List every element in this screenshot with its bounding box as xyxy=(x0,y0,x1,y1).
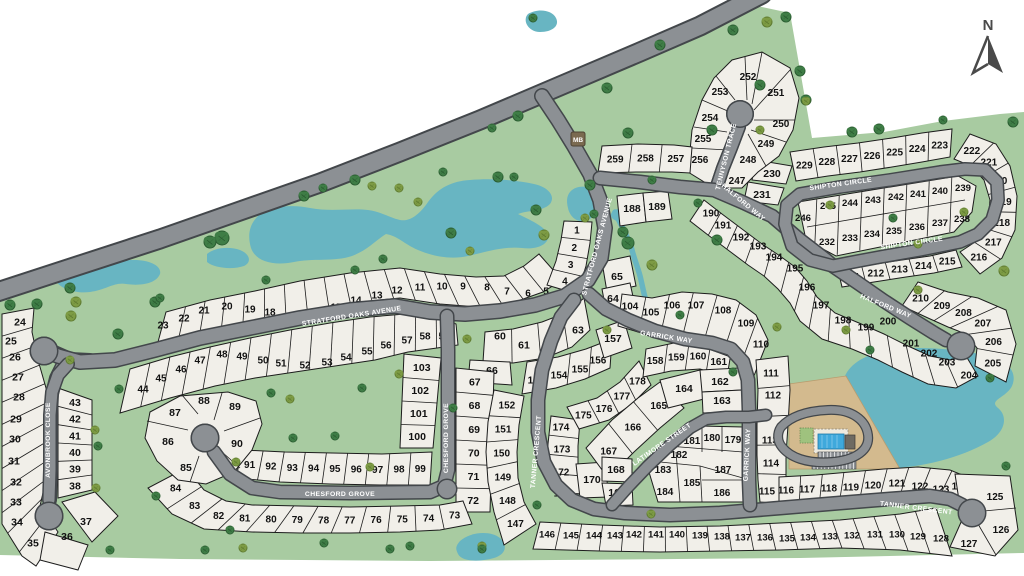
svg-text:244: 244 xyxy=(842,198,859,209)
svg-text:78: 78 xyxy=(318,515,330,526)
svg-text:236: 236 xyxy=(909,222,925,233)
svg-text:94: 94 xyxy=(308,464,320,475)
svg-text:223: 223 xyxy=(931,140,948,151)
svg-text:256: 256 xyxy=(692,155,709,166)
svg-text:184: 184 xyxy=(657,487,674,498)
svg-text:88: 88 xyxy=(198,395,210,407)
svg-text:166: 166 xyxy=(625,423,642,434)
svg-text:56: 56 xyxy=(380,341,392,352)
svg-text:165: 165 xyxy=(650,401,667,412)
svg-text:87: 87 xyxy=(169,407,181,419)
svg-text:128: 128 xyxy=(933,533,950,544)
svg-text:50: 50 xyxy=(257,356,269,367)
svg-text:203: 203 xyxy=(939,358,956,369)
svg-text:125: 125 xyxy=(987,492,1004,503)
svg-text:239: 239 xyxy=(955,183,971,194)
svg-text:143: 143 xyxy=(607,530,623,541)
svg-text:110: 110 xyxy=(753,340,770,351)
svg-text:77: 77 xyxy=(344,516,356,527)
svg-text:105: 105 xyxy=(643,308,660,319)
svg-text:163: 163 xyxy=(713,395,731,407)
svg-text:118: 118 xyxy=(821,484,838,495)
svg-text:34: 34 xyxy=(11,517,23,529)
svg-text:107: 107 xyxy=(688,301,705,312)
svg-text:253: 253 xyxy=(712,87,729,98)
svg-text:145: 145 xyxy=(563,530,580,541)
svg-text:36: 36 xyxy=(61,531,73,543)
svg-text:216: 216 xyxy=(970,252,987,263)
svg-text:42: 42 xyxy=(69,414,81,426)
svg-text:237: 237 xyxy=(932,218,948,229)
svg-text:75: 75 xyxy=(397,514,409,525)
svg-text:201: 201 xyxy=(903,339,920,350)
svg-text:79: 79 xyxy=(292,515,304,526)
svg-text:32: 32 xyxy=(10,477,22,489)
svg-text:65: 65 xyxy=(611,271,623,283)
svg-text:202: 202 xyxy=(921,349,938,360)
svg-text:39: 39 xyxy=(69,464,81,476)
svg-text:112: 112 xyxy=(765,391,782,402)
svg-text:131: 131 xyxy=(867,529,884,540)
svg-text:135: 135 xyxy=(779,533,796,544)
svg-text:151: 151 xyxy=(495,424,512,435)
svg-text:187: 187 xyxy=(715,465,732,476)
svg-text:CHESFORD GROVE: CHESFORD GROVE xyxy=(443,403,450,473)
svg-text:150: 150 xyxy=(493,448,510,459)
svg-text:22: 22 xyxy=(178,314,190,325)
svg-text:215: 215 xyxy=(939,257,956,268)
svg-text:144: 144 xyxy=(586,530,603,541)
svg-text:226: 226 xyxy=(864,151,881,162)
svg-text:74: 74 xyxy=(423,513,435,524)
svg-text:194: 194 xyxy=(766,253,783,264)
svg-text:139: 139 xyxy=(692,530,708,541)
svg-text:95: 95 xyxy=(329,464,341,475)
svg-text:91: 91 xyxy=(244,460,256,471)
svg-text:198: 198 xyxy=(835,316,852,327)
svg-text:38: 38 xyxy=(69,480,81,492)
svg-text:33: 33 xyxy=(10,497,22,509)
svg-text:31: 31 xyxy=(8,456,20,468)
svg-text:134: 134 xyxy=(800,532,817,543)
svg-text:192: 192 xyxy=(733,233,750,244)
svg-text:137: 137 xyxy=(735,532,751,543)
svg-text:120: 120 xyxy=(865,481,882,492)
svg-text:CHESFORD GROVE: CHESFORD GROVE xyxy=(305,491,375,498)
svg-text:136: 136 xyxy=(757,532,773,543)
svg-text:178: 178 xyxy=(629,376,646,387)
svg-text:183: 183 xyxy=(655,465,672,476)
svg-text:243: 243 xyxy=(865,195,881,206)
svg-text:247: 247 xyxy=(729,176,746,187)
svg-text:188: 188 xyxy=(623,203,641,215)
svg-text:61: 61 xyxy=(518,340,530,352)
svg-text:189: 189 xyxy=(648,201,666,213)
svg-text:197: 197 xyxy=(813,301,830,312)
svg-text:111: 111 xyxy=(763,369,779,380)
svg-text:69: 69 xyxy=(468,424,480,436)
svg-text:175: 175 xyxy=(575,410,592,421)
svg-text:249: 249 xyxy=(758,139,775,150)
svg-text:161: 161 xyxy=(710,357,727,368)
svg-text:63: 63 xyxy=(572,325,584,337)
svg-text:210: 210 xyxy=(912,294,929,305)
svg-text:179: 179 xyxy=(725,435,742,446)
svg-text:154: 154 xyxy=(551,371,568,382)
svg-text:58: 58 xyxy=(419,332,431,343)
svg-text:182: 182 xyxy=(671,450,688,461)
svg-text:71: 71 xyxy=(468,471,480,483)
svg-text:10: 10 xyxy=(436,282,448,293)
svg-text:1: 1 xyxy=(574,226,580,237)
svg-text:68: 68 xyxy=(469,400,481,412)
svg-text:255: 255 xyxy=(695,134,712,145)
svg-text:57: 57 xyxy=(401,336,413,347)
svg-text:227: 227 xyxy=(841,154,858,165)
svg-text:24: 24 xyxy=(14,317,26,329)
svg-text:100: 100 xyxy=(408,431,426,443)
svg-text:98: 98 xyxy=(393,465,405,476)
svg-text:224: 224 xyxy=(909,144,926,155)
svg-text:3: 3 xyxy=(568,260,574,271)
svg-text:176: 176 xyxy=(596,404,613,415)
svg-text:51: 51 xyxy=(275,359,287,370)
svg-text:93: 93 xyxy=(287,463,299,474)
svg-text:44: 44 xyxy=(137,385,149,396)
svg-text:2: 2 xyxy=(572,243,578,254)
svg-text:116: 116 xyxy=(778,486,795,497)
svg-text:250: 250 xyxy=(773,119,790,130)
svg-text:173: 173 xyxy=(554,445,571,456)
svg-text:19: 19 xyxy=(244,305,256,316)
svg-text:40: 40 xyxy=(69,447,81,459)
svg-text:47: 47 xyxy=(194,356,206,367)
svg-text:170: 170 xyxy=(583,474,601,486)
svg-text:200: 200 xyxy=(880,317,897,328)
svg-text:86: 86 xyxy=(162,436,174,448)
svg-text:167: 167 xyxy=(600,446,617,457)
svg-text:232: 232 xyxy=(819,237,835,248)
svg-text:43: 43 xyxy=(69,397,81,409)
svg-text:55: 55 xyxy=(361,347,373,358)
svg-text:127: 127 xyxy=(961,539,978,550)
svg-text:102: 102 xyxy=(411,385,429,397)
svg-text:241: 241 xyxy=(910,189,927,200)
svg-text:72: 72 xyxy=(467,495,479,507)
svg-text:155: 155 xyxy=(572,365,589,376)
svg-text:54: 54 xyxy=(340,353,352,364)
svg-text:231: 231 xyxy=(753,189,771,201)
svg-text:162: 162 xyxy=(711,376,729,388)
svg-text:138: 138 xyxy=(714,531,731,542)
svg-text:27: 27 xyxy=(12,372,24,384)
svg-text:117: 117 xyxy=(799,485,816,496)
svg-text:141: 141 xyxy=(648,529,665,540)
svg-text:258: 258 xyxy=(637,154,654,165)
svg-text:205: 205 xyxy=(984,358,1001,369)
svg-text:193: 193 xyxy=(750,242,767,253)
svg-text:212: 212 xyxy=(867,268,884,279)
svg-text:92: 92 xyxy=(265,462,277,473)
svg-text:217: 217 xyxy=(985,238,1002,249)
svg-text:248: 248 xyxy=(740,155,757,166)
svg-text:108: 108 xyxy=(715,306,732,317)
svg-text:53: 53 xyxy=(321,358,333,369)
svg-text:81: 81 xyxy=(239,513,251,524)
svg-text:235: 235 xyxy=(886,226,903,237)
svg-text:186: 186 xyxy=(714,488,731,499)
svg-text:23: 23 xyxy=(157,321,169,332)
svg-text:146: 146 xyxy=(539,529,555,540)
svg-text:206: 206 xyxy=(985,337,1002,348)
svg-text:129: 129 xyxy=(910,531,926,542)
svg-text:26: 26 xyxy=(9,352,21,364)
svg-text:12: 12 xyxy=(391,286,403,297)
svg-text:257: 257 xyxy=(668,154,685,165)
svg-text:99: 99 xyxy=(415,464,427,475)
svg-text:196: 196 xyxy=(799,283,816,294)
svg-text:252: 252 xyxy=(740,72,757,83)
svg-text:96: 96 xyxy=(351,465,363,476)
svg-text:115: 115 xyxy=(759,487,776,498)
svg-text:259: 259 xyxy=(607,154,624,165)
svg-text:230: 230 xyxy=(763,168,781,180)
svg-text:80: 80 xyxy=(266,514,278,525)
svg-text:101: 101 xyxy=(410,408,428,420)
svg-text:242: 242 xyxy=(888,192,904,203)
svg-text:168: 168 xyxy=(607,464,625,476)
svg-text:N: N xyxy=(983,17,994,34)
svg-text:49: 49 xyxy=(236,352,248,363)
svg-text:30: 30 xyxy=(9,434,21,446)
svg-text:45: 45 xyxy=(155,374,167,385)
svg-text:90: 90 xyxy=(231,438,243,450)
svg-text:48: 48 xyxy=(216,350,228,361)
svg-text:25: 25 xyxy=(5,336,17,348)
svg-text:29: 29 xyxy=(10,414,22,426)
svg-text:106: 106 xyxy=(664,301,681,312)
svg-text:240: 240 xyxy=(932,186,948,197)
svg-text:9: 9 xyxy=(460,282,466,293)
svg-text:73: 73 xyxy=(449,510,461,521)
svg-text:180: 180 xyxy=(704,433,721,444)
svg-text:208: 208 xyxy=(955,308,972,319)
svg-text:132: 132 xyxy=(844,530,860,541)
svg-text:133: 133 xyxy=(822,531,838,542)
svg-text:207: 207 xyxy=(975,318,992,329)
svg-text:209: 209 xyxy=(934,301,951,312)
svg-text:7: 7 xyxy=(504,287,510,298)
svg-text:28: 28 xyxy=(13,392,25,404)
svg-text:109: 109 xyxy=(738,319,755,330)
svg-text:191: 191 xyxy=(715,221,732,232)
svg-text:229: 229 xyxy=(796,160,813,171)
svg-text:60: 60 xyxy=(494,331,506,343)
svg-text:126: 126 xyxy=(993,525,1010,536)
svg-text:152: 152 xyxy=(499,400,516,411)
svg-text:35: 35 xyxy=(27,538,39,550)
svg-text:130: 130 xyxy=(889,529,905,540)
svg-text:83: 83 xyxy=(189,501,201,512)
svg-text:222: 222 xyxy=(964,146,981,157)
svg-text:213: 213 xyxy=(891,265,908,276)
svg-text:140: 140 xyxy=(669,529,685,540)
svg-text:177: 177 xyxy=(614,391,631,402)
svg-text:214: 214 xyxy=(915,261,932,272)
svg-text:225: 225 xyxy=(886,148,903,159)
svg-text:199: 199 xyxy=(858,323,875,334)
svg-text:37: 37 xyxy=(80,516,92,528)
svg-text:52: 52 xyxy=(299,361,311,372)
svg-text:254: 254 xyxy=(702,113,719,124)
svg-text:160: 160 xyxy=(690,352,707,363)
svg-text:89: 89 xyxy=(229,401,241,413)
svg-text:85: 85 xyxy=(180,462,192,474)
svg-text:174: 174 xyxy=(553,423,570,434)
svg-text:76: 76 xyxy=(371,515,383,526)
svg-text:114: 114 xyxy=(763,459,780,470)
svg-text:251: 251 xyxy=(768,88,785,99)
svg-text:AVONBROOK CLOSE: AVONBROOK CLOSE xyxy=(45,402,52,478)
svg-text:195: 195 xyxy=(787,264,804,275)
svg-text:21: 21 xyxy=(198,306,210,317)
svg-text:11: 11 xyxy=(415,283,426,294)
svg-text:185: 185 xyxy=(684,478,701,489)
svg-text:147: 147 xyxy=(507,519,524,530)
svg-text:159: 159 xyxy=(668,352,685,363)
svg-text:103: 103 xyxy=(413,362,431,374)
svg-text:46: 46 xyxy=(175,365,187,376)
svg-text:149: 149 xyxy=(495,473,512,484)
svg-text:228: 228 xyxy=(819,157,836,168)
svg-text:233: 233 xyxy=(842,233,858,244)
svg-text:MB: MB xyxy=(573,137,583,144)
svg-text:70: 70 xyxy=(468,448,480,460)
svg-text:158: 158 xyxy=(647,356,664,367)
svg-text:190: 190 xyxy=(703,209,720,220)
svg-text:82: 82 xyxy=(213,511,225,522)
svg-text:41: 41 xyxy=(69,430,81,442)
svg-text:157: 157 xyxy=(604,333,622,345)
svg-text:164: 164 xyxy=(675,383,693,395)
svg-text:20: 20 xyxy=(221,302,233,313)
svg-text:67: 67 xyxy=(469,377,481,389)
svg-text:246: 246 xyxy=(795,213,811,224)
svg-text:121: 121 xyxy=(889,479,906,490)
svg-text:119: 119 xyxy=(843,483,860,494)
svg-text:8: 8 xyxy=(484,283,490,294)
svg-text:234: 234 xyxy=(864,229,881,240)
svg-text:84: 84 xyxy=(170,483,182,494)
svg-text:204: 204 xyxy=(961,371,978,382)
svg-text:142: 142 xyxy=(626,529,642,540)
svg-text:148: 148 xyxy=(499,496,516,507)
